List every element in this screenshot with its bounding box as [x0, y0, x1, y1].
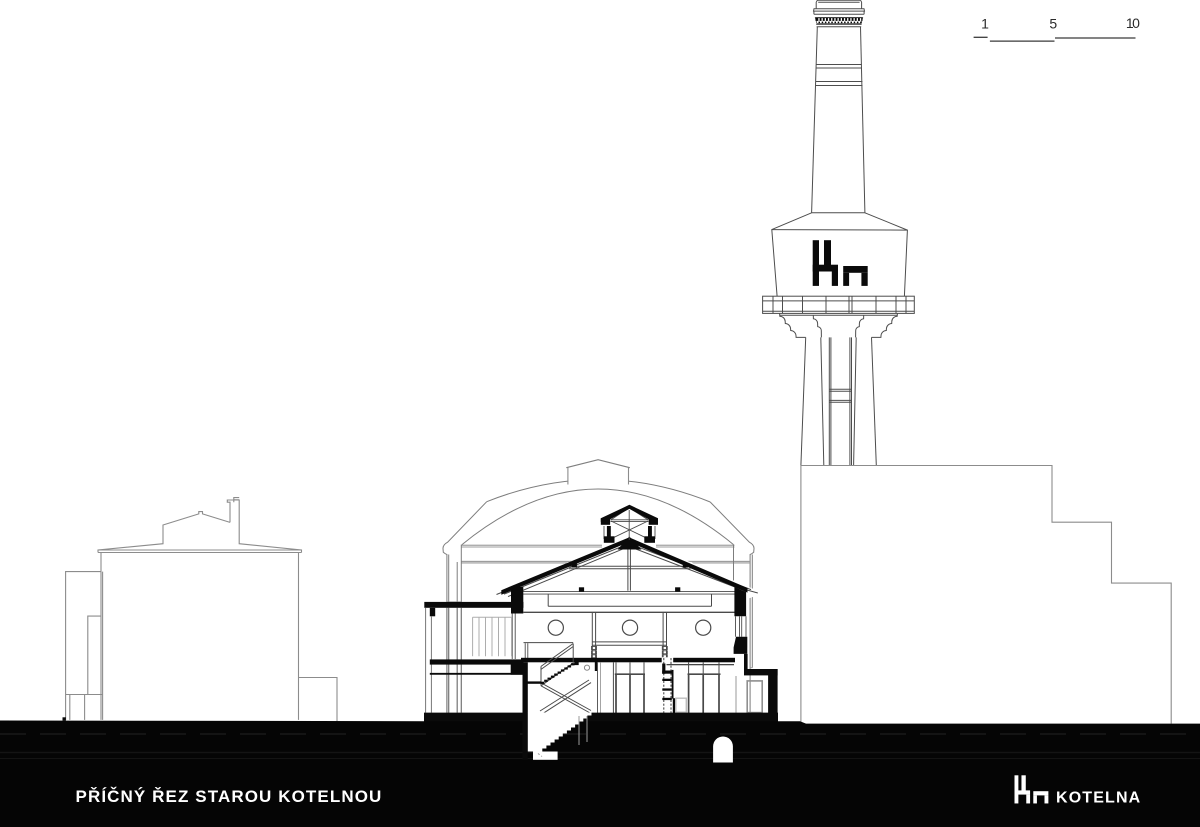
svg-text:KOTELNA: KOTELNA [1056, 790, 1141, 807]
svg-text:10: 10 [1126, 15, 1140, 31]
svg-text:1: 1 [981, 16, 989, 32]
svg-text:5: 5 [1049, 16, 1057, 32]
svg-text:PŘÍČNÝ ŘEZ STAROU KOTELNOU: PŘÍČNÝ ŘEZ STAROU KOTELNOU [76, 787, 383, 806]
